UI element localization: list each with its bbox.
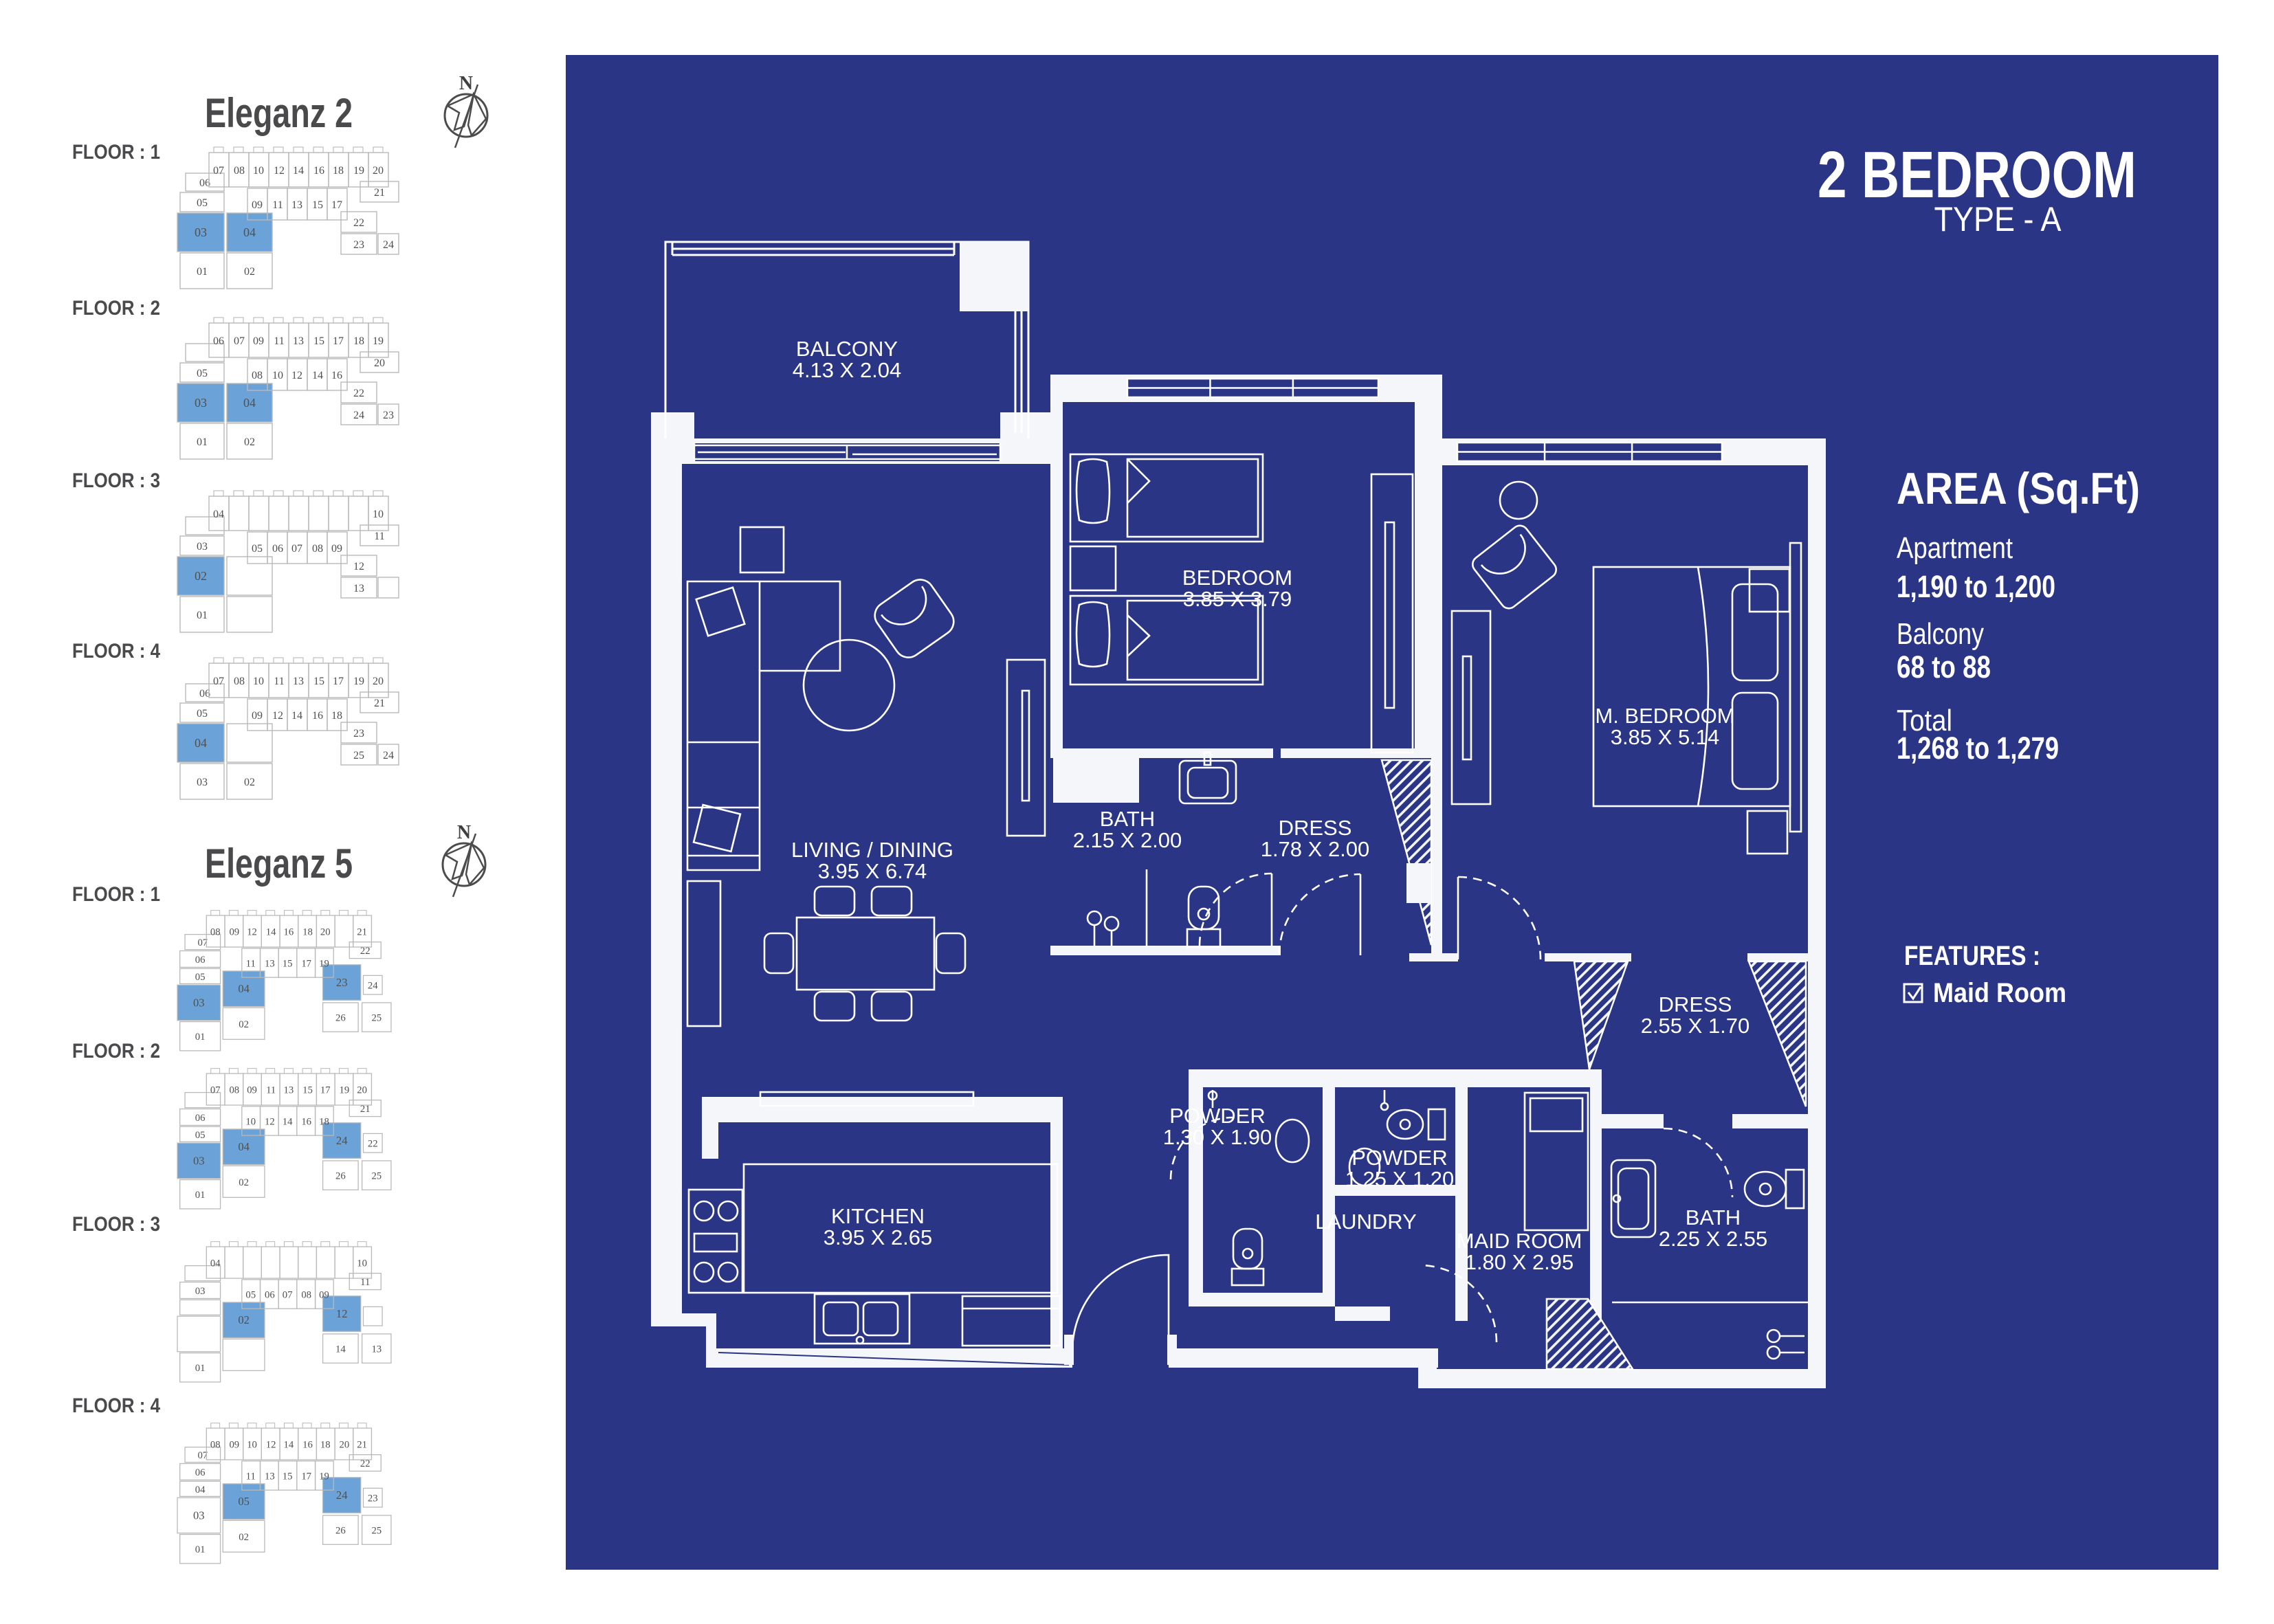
svg-text:12: 12	[266, 1440, 276, 1451]
svg-text:DRESS: DRESS	[1279, 816, 1352, 840]
svg-text:17: 17	[333, 676, 344, 687]
svg-text:03: 03	[193, 1509, 205, 1522]
svg-text:FLOOR : 3: FLOOR : 3	[72, 469, 160, 492]
svg-text:14: 14	[283, 1117, 293, 1128]
svg-text:08: 08	[312, 543, 323, 555]
svg-text:04: 04	[195, 736, 207, 750]
svg-text:22: 22	[368, 1139, 378, 1150]
svg-text:20: 20	[340, 1440, 350, 1451]
svg-text:07: 07	[291, 543, 302, 555]
svg-text:18: 18	[353, 335, 364, 347]
svg-text:25: 25	[371, 1526, 382, 1537]
svg-text:07: 07	[213, 165, 224, 177]
svg-text:24: 24	[336, 1489, 348, 1502]
svg-text:05: 05	[195, 1130, 206, 1141]
svg-text:2.25 X 2.55: 2.25 X 2.55	[1659, 1227, 1768, 1251]
svg-text:09: 09	[331, 543, 342, 555]
svg-text:02: 02	[244, 436, 255, 448]
svg-text:3.85 X 5.14: 3.85 X 5.14	[1611, 725, 1720, 749]
svg-text:10: 10	[357, 1258, 367, 1269]
svg-text:1,190 to 1,200: 1,190 to 1,200	[1897, 569, 2055, 604]
svg-text:N: N	[459, 73, 473, 94]
svg-text:02: 02	[244, 266, 255, 278]
svg-text:16: 16	[302, 1440, 313, 1451]
svg-text:12: 12	[274, 165, 285, 177]
svg-text:24: 24	[383, 750, 394, 761]
svg-text:19: 19	[319, 1471, 329, 1482]
svg-text:04: 04	[195, 1484, 206, 1495]
svg-text:02: 02	[239, 1177, 249, 1188]
svg-text:03: 03	[195, 396, 207, 410]
svg-text:01: 01	[197, 436, 208, 448]
svg-text:08: 08	[252, 370, 263, 381]
svg-text:05: 05	[197, 197, 208, 209]
svg-text:20: 20	[320, 927, 331, 938]
svg-text:19: 19	[319, 959, 329, 970]
svg-text:05: 05	[245, 1290, 256, 1301]
svg-text:3.95 X 6.74: 3.95 X 6.74	[818, 859, 927, 883]
svg-text:FLOOR : 4: FLOOR : 4	[72, 1394, 160, 1417]
svg-text:24: 24	[353, 410, 364, 421]
svg-text:13: 13	[291, 199, 302, 211]
svg-text:23: 23	[336, 976, 348, 989]
svg-text:16: 16	[284, 927, 294, 938]
svg-text:11: 11	[246, 959, 256, 970]
svg-text:05: 05	[195, 972, 206, 983]
svg-text:06: 06	[195, 955, 206, 966]
svg-text:18: 18	[320, 1440, 331, 1451]
svg-text:10: 10	[253, 676, 264, 687]
svg-text:13: 13	[371, 1344, 382, 1355]
svg-text:14: 14	[266, 927, 276, 938]
svg-text:12: 12	[272, 710, 283, 722]
svg-text:DRESS: DRESS	[1659, 992, 1732, 1016]
svg-text:20: 20	[373, 676, 384, 687]
svg-text:05: 05	[197, 368, 208, 379]
svg-text:26: 26	[335, 1526, 346, 1537]
svg-text:19: 19	[353, 165, 364, 177]
svg-text:22: 22	[353, 217, 364, 229]
svg-text:10: 10	[245, 1117, 256, 1128]
svg-text:03: 03	[193, 996, 205, 1009]
svg-text:12: 12	[336, 1307, 348, 1320]
svg-text:13: 13	[293, 676, 304, 687]
svg-text:08: 08	[210, 927, 221, 938]
svg-text:08: 08	[234, 676, 245, 687]
svg-text:11: 11	[274, 676, 284, 687]
svg-text:07: 07	[213, 676, 224, 687]
svg-text:KITCHEN: KITCHEN	[831, 1204, 925, 1228]
svg-text:Apartment: Apartment	[1897, 531, 2013, 565]
svg-text:11: 11	[374, 531, 384, 542]
svg-text:2.15 X 2.00: 2.15 X 2.00	[1073, 828, 1182, 852]
svg-text:20: 20	[374, 357, 385, 369]
svg-text:08: 08	[210, 1440, 221, 1451]
svg-text:FLOOR : 4: FLOOR : 4	[72, 640, 160, 663]
svg-text:15: 15	[312, 199, 323, 211]
svg-text:20: 20	[373, 165, 384, 177]
svg-text:06: 06	[272, 543, 283, 555]
svg-text:23: 23	[353, 239, 364, 251]
svg-text:25: 25	[371, 1013, 382, 1024]
svg-text:11: 11	[272, 199, 283, 211]
svg-text:1.30 X 1.90: 1.30 X 1.90	[1163, 1125, 1272, 1149]
svg-text:15: 15	[313, 676, 324, 687]
svg-text:13: 13	[284, 1085, 294, 1096]
svg-text:21: 21	[374, 698, 385, 709]
svg-text:09: 09	[252, 199, 263, 211]
svg-text:24: 24	[336, 1134, 348, 1147]
svg-text:10: 10	[373, 509, 384, 520]
svg-text:06: 06	[195, 1467, 206, 1478]
svg-text:Eleganz 5: Eleganz 5	[205, 841, 353, 887]
svg-text:26: 26	[335, 1013, 346, 1024]
svg-text:FEATURES :: FEATURES :	[1904, 941, 2040, 971]
svg-text:BEDROOM: BEDROOM	[1182, 566, 1292, 590]
svg-text:14: 14	[291, 710, 302, 722]
svg-text:15: 15	[302, 1085, 313, 1096]
svg-text:17: 17	[301, 1471, 311, 1482]
svg-text:06: 06	[265, 1290, 275, 1301]
svg-text:68 to 88: 68 to 88	[1897, 649, 1991, 685]
svg-text:18: 18	[319, 1117, 329, 1128]
svg-text:09: 09	[229, 927, 239, 938]
svg-text:06: 06	[213, 335, 224, 347]
svg-text:26: 26	[335, 1171, 346, 1182]
svg-text:Maid Room: Maid Room	[1933, 978, 2066, 1008]
svg-text:04: 04	[210, 1258, 221, 1269]
svg-text:23: 23	[368, 1493, 378, 1504]
svg-text:19: 19	[340, 1085, 350, 1096]
svg-text:AREA (Sq.Ft): AREA (Sq.Ft)	[1897, 463, 2140, 513]
svg-text:LIVING / DINING: LIVING / DINING	[791, 838, 953, 862]
svg-text:3.95 X 2.65: 3.95 X 2.65	[824, 1225, 933, 1249]
svg-text:10: 10	[272, 370, 283, 381]
svg-text:02: 02	[195, 569, 207, 583]
svg-text:14: 14	[312, 370, 323, 381]
svg-text:3.85 X 3.79: 3.85 X 3.79	[1183, 587, 1292, 611]
svg-text:11: 11	[246, 1471, 256, 1482]
svg-text:17: 17	[320, 1085, 331, 1096]
svg-text:03: 03	[197, 777, 208, 788]
svg-text:21: 21	[374, 187, 385, 199]
svg-text:13: 13	[353, 583, 364, 594]
svg-text:N: N	[457, 822, 471, 843]
svg-text:Balcony: Balcony	[1897, 617, 1984, 651]
svg-text:21: 21	[357, 927, 367, 938]
svg-text:17: 17	[333, 335, 344, 347]
svg-text:FLOOR : 1: FLOOR : 1	[72, 883, 160, 906]
svg-text:4.13 X 2.04: 4.13 X 2.04	[793, 358, 902, 382]
svg-text:07: 07	[234, 335, 245, 347]
svg-text:13: 13	[265, 959, 275, 970]
svg-text:FLOOR : 1: FLOOR : 1	[72, 141, 160, 164]
svg-text:Eleganz 2: Eleganz 2	[205, 90, 353, 136]
svg-text:FLOOR : 3: FLOOR : 3	[72, 1213, 160, 1236]
svg-text:01: 01	[195, 1032, 206, 1043]
svg-text:04: 04	[243, 225, 256, 239]
svg-text:02: 02	[239, 1532, 249, 1543]
svg-text:14: 14	[335, 1344, 346, 1355]
svg-text:05: 05	[238, 1495, 250, 1508]
svg-text:25: 25	[371, 1171, 382, 1182]
svg-text:12: 12	[353, 561, 364, 572]
svg-text:1,268 to 1,279: 1,268 to 1,279	[1897, 731, 2059, 766]
svg-text:18: 18	[331, 710, 342, 722]
svg-text:1.80 X 2.95: 1.80 X 2.95	[1465, 1250, 1574, 1274]
svg-text:08: 08	[229, 1085, 239, 1096]
svg-text:21: 21	[357, 1440, 367, 1451]
svg-text:19: 19	[373, 335, 384, 347]
svg-text:1.78 X 2.00: 1.78 X 2.00	[1261, 837, 1370, 861]
svg-text:19: 19	[353, 676, 364, 687]
svg-text:02: 02	[238, 1313, 250, 1326]
svg-text:12: 12	[247, 927, 257, 938]
svg-text:03: 03	[197, 541, 208, 553]
svg-text:BALCONY: BALCONY	[796, 337, 898, 361]
svg-text:17: 17	[331, 199, 342, 211]
svg-text:13: 13	[265, 1471, 275, 1482]
svg-text:POWDER: POWDER	[1169, 1104, 1266, 1128]
svg-text:09: 09	[319, 1290, 329, 1301]
svg-text:1.25 X 1.20: 1.25 X 1.20	[1345, 1167, 1455, 1191]
svg-text:01: 01	[197, 266, 208, 278]
svg-text:01: 01	[195, 1363, 206, 1374]
svg-text:TYPE - A: TYPE - A	[1934, 200, 2062, 238]
svg-text:04: 04	[243, 396, 256, 410]
svg-text:22: 22	[353, 388, 364, 399]
svg-text:07: 07	[210, 1085, 221, 1096]
svg-text:LAUNDRY: LAUNDRY	[1315, 1210, 1417, 1234]
svg-text:16: 16	[331, 370, 342, 381]
svg-text:10: 10	[247, 1440, 257, 1451]
svg-text:16: 16	[313, 165, 324, 177]
svg-text:15: 15	[283, 959, 293, 970]
svg-text:BATH: BATH	[1686, 1205, 1741, 1230]
svg-text:09: 09	[229, 1440, 239, 1451]
svg-text:MAID ROOM: MAID ROOM	[1457, 1229, 1582, 1253]
svg-text:02: 02	[239, 1019, 249, 1030]
svg-text:03: 03	[193, 1154, 205, 1167]
svg-text:09: 09	[252, 710, 263, 722]
svg-text:15: 15	[313, 335, 324, 347]
svg-text:BATH: BATH	[1100, 807, 1155, 831]
svg-text:03: 03	[195, 225, 207, 239]
svg-text:23: 23	[383, 410, 394, 421]
svg-text:11: 11	[274, 335, 284, 347]
svg-text:M. BEDROOM: M. BEDROOM	[1595, 704, 1734, 728]
svg-text:18: 18	[333, 165, 344, 177]
svg-text:12: 12	[265, 1117, 275, 1128]
svg-text:24: 24	[368, 981, 378, 992]
svg-text:12: 12	[291, 370, 302, 381]
svg-text:10: 10	[253, 165, 264, 177]
svg-text:09: 09	[253, 335, 264, 347]
svg-text:POWDER: POWDER	[1351, 1146, 1448, 1170]
svg-text:11: 11	[266, 1085, 276, 1096]
svg-text:05: 05	[252, 543, 263, 555]
svg-text:05: 05	[197, 708, 208, 720]
svg-text:14: 14	[284, 1440, 294, 1451]
svg-text:20: 20	[357, 1085, 367, 1096]
svg-text:01: 01	[195, 1544, 206, 1555]
svg-text:18: 18	[302, 927, 313, 938]
svg-text:17: 17	[301, 959, 311, 970]
svg-text:2.55 X 1.70: 2.55 X 1.70	[1641, 1014, 1750, 1038]
svg-text:13: 13	[293, 335, 304, 347]
svg-text:16: 16	[301, 1117, 311, 1128]
svg-text:09: 09	[247, 1085, 257, 1096]
svg-text:01: 01	[197, 610, 208, 621]
svg-text:FLOOR : 2: FLOOR : 2	[72, 297, 160, 320]
svg-text:23: 23	[353, 728, 364, 739]
svg-text:02: 02	[244, 777, 255, 788]
svg-text:15: 15	[283, 1471, 293, 1482]
svg-text:03: 03	[195, 1286, 206, 1297]
svg-text:08: 08	[234, 165, 245, 177]
svg-text:04: 04	[238, 1140, 250, 1153]
svg-text:FLOOR : 2: FLOOR : 2	[72, 1040, 160, 1063]
svg-text:24: 24	[383, 239, 394, 251]
svg-text:25: 25	[353, 750, 364, 761]
svg-text:16: 16	[312, 710, 323, 722]
svg-text:06: 06	[195, 1113, 206, 1124]
svg-text:08: 08	[301, 1290, 311, 1301]
svg-text:01: 01	[195, 1190, 206, 1201]
svg-text:04: 04	[238, 982, 250, 995]
svg-text:14: 14	[293, 165, 304, 177]
svg-text:04: 04	[213, 509, 224, 520]
svg-text:07: 07	[283, 1290, 293, 1301]
